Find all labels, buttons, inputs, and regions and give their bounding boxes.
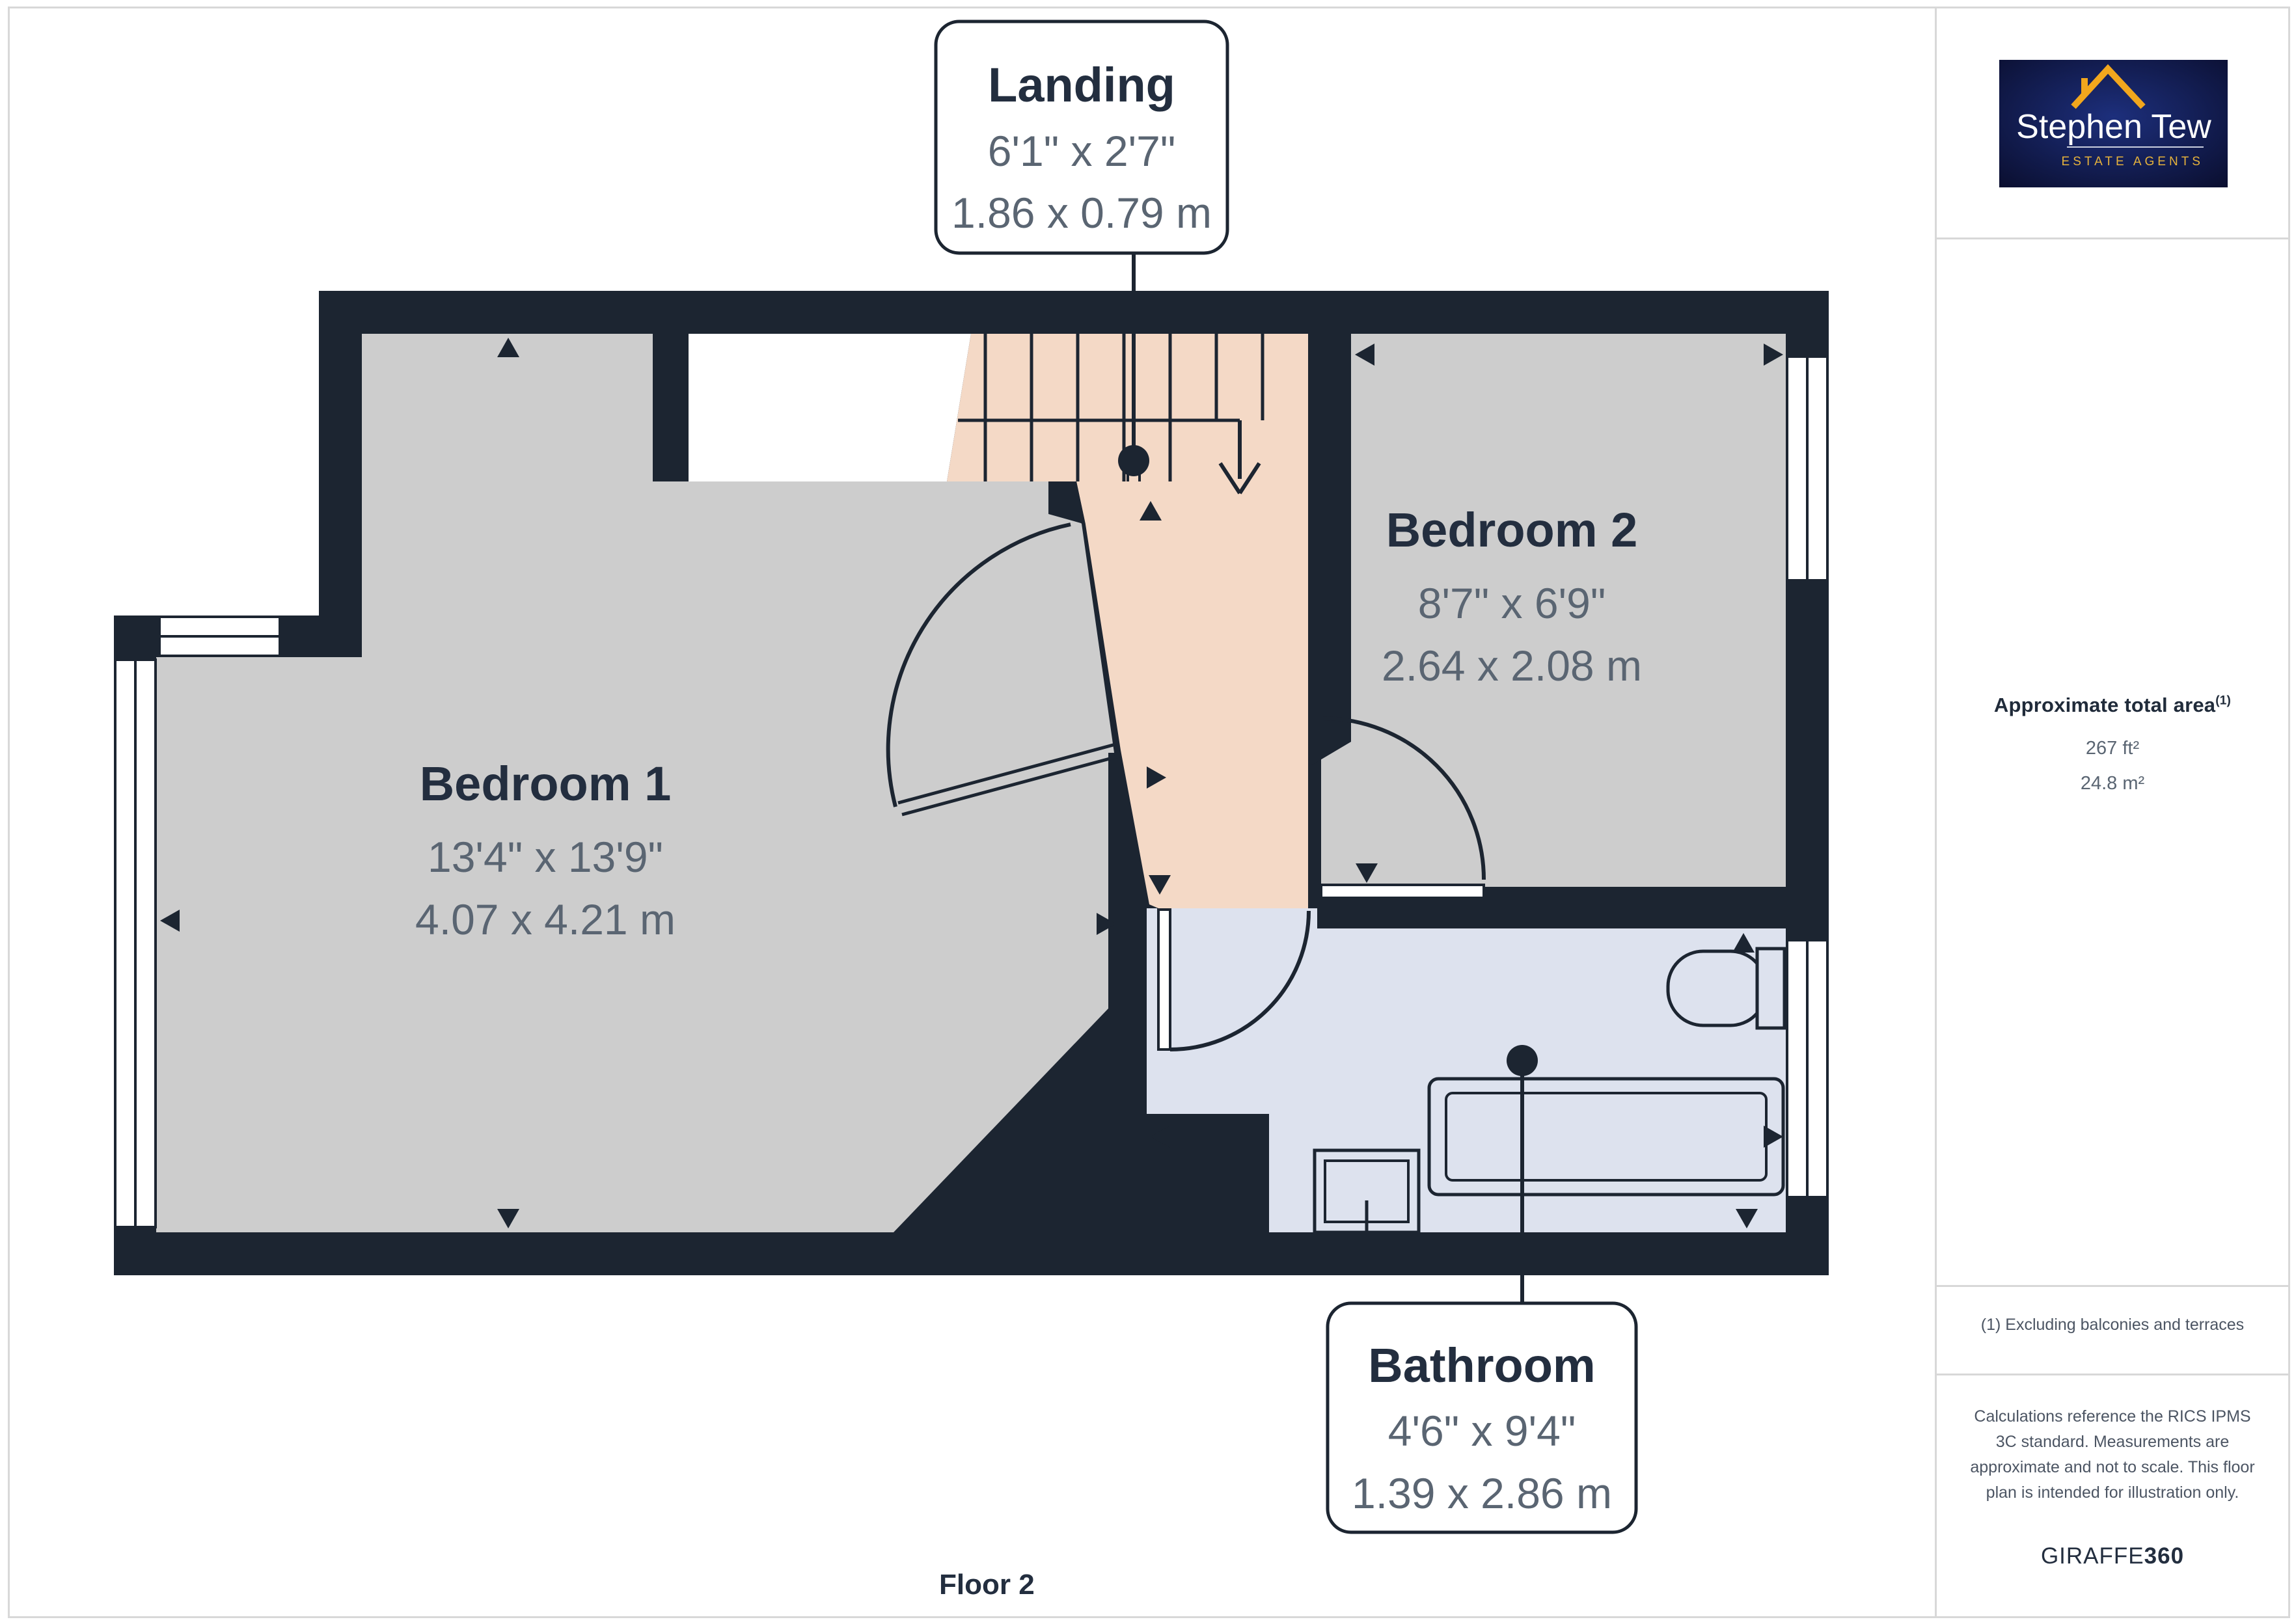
window-left: [115, 660, 156, 1227]
logo-tagline: ESTATE AGENTS: [2062, 155, 2204, 169]
sink: [1315, 1150, 1419, 1232]
landing-imperial: 6'1" x 2'7": [988, 127, 1176, 175]
svg-text:13'4" x 13'9": 13'4" x 13'9": [428, 833, 663, 881]
sidebar-divider: [1937, 237, 2288, 239]
bedroom2-label: Bedroom 2 8'7" x 6'9" 2.64 x 2.08 m: [1382, 503, 1642, 690]
window-top-left: [159, 617, 280, 656]
svg-text:8'7" x 6'9": 8'7" x 6'9": [1418, 579, 1606, 627]
area-title-superscript: (1): [2215, 694, 2231, 708]
logo-text: Stephen Tew: [2016, 108, 2211, 146]
sidebar-divider: [1937, 1285, 2288, 1287]
bathroom-metric: 1.39 x 2.86 m: [1352, 1469, 1612, 1517]
bathroom-title: Bathroom: [1368, 1338, 1595, 1392]
svg-text:Bedroom 2: Bedroom 2: [1386, 503, 1638, 557]
bathroom-callout: Bathroom 4'6" x 9'4" 1.39 x 2.86 m: [1328, 1303, 1636, 1532]
agency-logo: Stephen Tew ESTATE AGENTS: [1999, 60, 2228, 187]
landing-title: Landing: [988, 58, 1175, 112]
window-bathroom: [1787, 940, 1827, 1197]
bathtub: [1429, 1079, 1783, 1195]
sidebar: Stephen Tew ESTATE AGENTS Approximate to…: [1935, 7, 2288, 1616]
area-metric: 24.8 m²: [1937, 773, 2288, 794]
disclaimer: Calculations reference the RICS IPMS 3C …: [1937, 1404, 2288, 1506]
toilet: [1668, 949, 1784, 1028]
stairwell-void: [689, 334, 971, 481]
landing-metric: 1.86 x 0.79 m: [951, 189, 1212, 237]
floor-plan: Landing 6'1" x 2'7" 1.86 x 0.79 m Bathro…: [0, 0, 1935, 1624]
floorplan-page: Landing 6'1" x 2'7" 1.86 x 0.79 m Bathro…: [0, 0, 2296, 1624]
bathroom-imperial: 4'6" x 9'4": [1388, 1407, 1576, 1455]
svg-text:Bedroom 1: Bedroom 1: [420, 757, 672, 811]
area-title-text: Approximate total area: [1994, 694, 2215, 716]
brand-number: 360: [2144, 1543, 2184, 1569]
area-title: Approximate total area(1): [1937, 694, 2288, 717]
bedroom1-label: Bedroom 1 13'4" x 13'9" 4.07 x 4.21 m: [415, 757, 676, 943]
window-bedroom2: [1787, 357, 1827, 580]
leader-dot: [1118, 445, 1149, 476]
footnote: (1) Excluding balconies and terraces: [1937, 1316, 2288, 1334]
floor-label: Floor 2: [939, 1569, 1035, 1601]
giraffe360-brand: GIRAFFE360: [1937, 1543, 2288, 1569]
leader-dot: [1507, 1045, 1538, 1076]
sidebar-divider: [1937, 1374, 2288, 1375]
svg-text:4.07 x 4.21 m: 4.07 x 4.21 m: [415, 895, 676, 943]
brand-word: GIRAFFE: [2041, 1543, 2144, 1569]
svg-text:2.64 x 2.08 m: 2.64 x 2.08 m: [1382, 642, 1642, 690]
landing-callout: Landing 6'1" x 2'7" 1.86 x 0.79 m: [936, 21, 1227, 253]
area-imperial: 267 ft²: [1937, 738, 2288, 759]
